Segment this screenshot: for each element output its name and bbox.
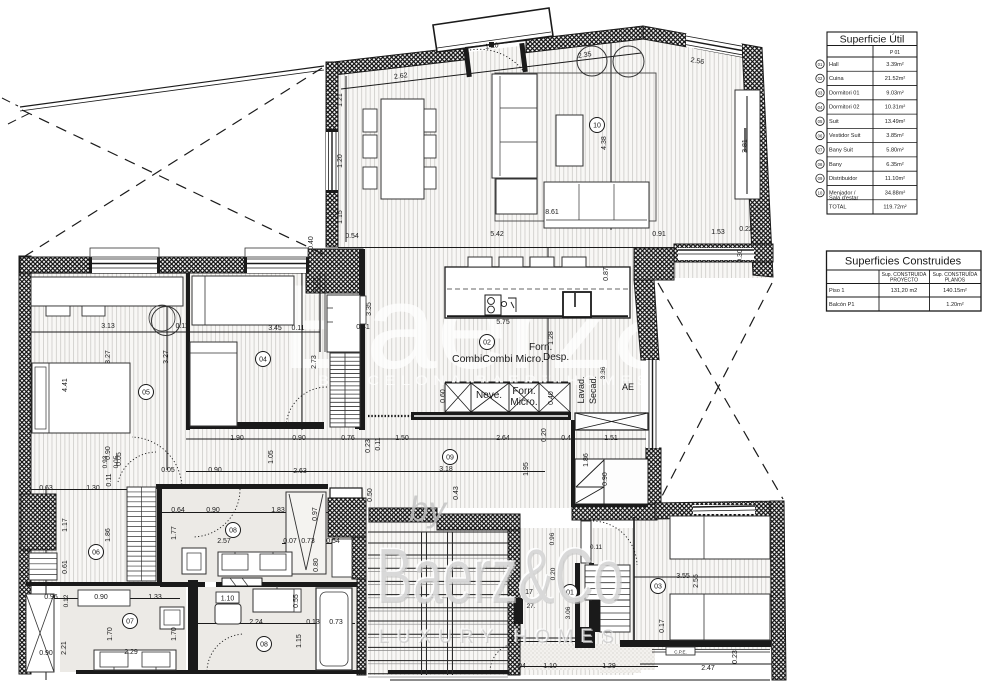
svg-text:0.40: 0.40 bbox=[548, 391, 555, 405]
svg-text:3.45: 3.45 bbox=[268, 325, 282, 332]
svg-text:Baerz&Co: Baerz&Co bbox=[377, 532, 624, 620]
svg-text:0.93: 0.93 bbox=[102, 455, 109, 468]
svg-text:Hall: Hall bbox=[829, 62, 839, 68]
svg-text:02: 02 bbox=[483, 340, 491, 347]
svg-text:2.64: 2.64 bbox=[496, 435, 510, 442]
svg-text:0.17: 0.17 bbox=[659, 619, 666, 633]
svg-text:Dormitori 01: Dormitori 01 bbox=[829, 90, 859, 96]
svg-text:0.40: 0.40 bbox=[308, 236, 315, 250]
svg-text:0.33: 0.33 bbox=[313, 277, 320, 291]
svg-text:3.39m²: 3.39m² bbox=[886, 62, 904, 68]
svg-text:3.35: 3.35 bbox=[366, 302, 373, 316]
svg-text:1.15: 1.15 bbox=[337, 210, 344, 224]
svg-text:0.41: 0.41 bbox=[561, 435, 575, 442]
svg-text:AE: AE bbox=[622, 382, 634, 392]
svg-text:Secad.: Secad. bbox=[588, 376, 598, 404]
svg-text:5.80m²: 5.80m² bbox=[886, 147, 904, 153]
svg-text:0.73: 0.73 bbox=[301, 538, 315, 545]
svg-text:0.30: 0.30 bbox=[737, 249, 744, 263]
svg-text:04: 04 bbox=[818, 105, 823, 110]
svg-text:C.P.E.: C.P.E. bbox=[674, 650, 686, 655]
svg-text:0.54: 0.54 bbox=[345, 233, 359, 240]
svg-text:Vestidor Suit: Vestidor Suit bbox=[829, 133, 861, 139]
svg-text:06: 06 bbox=[818, 133, 823, 138]
svg-text:0.43: 0.43 bbox=[453, 486, 460, 500]
svg-text:3.85m²: 3.85m² bbox=[886, 133, 904, 139]
svg-text:0.23: 0.23 bbox=[732, 650, 739, 664]
svg-text:1.10: 1.10 bbox=[543, 663, 557, 670]
svg-text:2.24: 2.24 bbox=[249, 619, 263, 626]
svg-text:0.61: 0.61 bbox=[62, 560, 69, 574]
svg-text:6.35m²: 6.35m² bbox=[886, 162, 904, 168]
svg-text:0.50: 0.50 bbox=[367, 488, 374, 502]
svg-text:1.30: 1.30 bbox=[86, 485, 100, 492]
svg-text:LUXURY HOMES: LUXURY HOMES bbox=[379, 627, 622, 648]
svg-text:0.11: 0.11 bbox=[291, 325, 304, 332]
svg-text:1.10: 1.10 bbox=[221, 596, 235, 603]
svg-text:04: 04 bbox=[518, 663, 526, 670]
svg-text:1.33: 1.33 bbox=[148, 594, 162, 601]
svg-text:Piso 1: Piso 1 bbox=[829, 288, 845, 294]
svg-text:07: 07 bbox=[126, 619, 134, 626]
svg-text:2.57: 2.57 bbox=[217, 538, 231, 545]
svg-text:3.13: 3.13 bbox=[101, 323, 115, 330]
svg-text:1.86: 1.86 bbox=[105, 528, 112, 542]
svg-text:1.50: 1.50 bbox=[395, 435, 409, 442]
svg-text:0.20: 0.20 bbox=[541, 428, 548, 442]
svg-text:4.38: 4.38 bbox=[601, 136, 608, 150]
svg-text:34.88m²: 34.88m² bbox=[885, 190, 906, 196]
svg-text:1.15: 1.15 bbox=[296, 634, 303, 648]
svg-text:10: 10 bbox=[818, 190, 823, 195]
svg-text:P 01: P 01 bbox=[890, 50, 900, 56]
svg-text:Distribuidor: Distribuidor bbox=[829, 176, 857, 182]
svg-text:Suit: Suit bbox=[829, 119, 839, 125]
svg-text:02: 02 bbox=[818, 76, 823, 81]
svg-text:3.81: 3.81 bbox=[742, 139, 749, 153]
svg-text:0.12: 0.12 bbox=[63, 594, 70, 607]
svg-text:0.05: 0.05 bbox=[161, 467, 175, 474]
svg-text:2.73: 2.73 bbox=[311, 355, 318, 369]
svg-text:21.52m²: 21.52m² bbox=[885, 76, 906, 82]
svg-text:0.96: 0.96 bbox=[44, 594, 58, 601]
svg-text:2.47: 2.47 bbox=[701, 665, 715, 672]
svg-text:0.54: 0.54 bbox=[326, 538, 340, 545]
svg-text:Bany Suit: Bany Suit bbox=[829, 147, 853, 153]
svg-text:01: 01 bbox=[818, 62, 823, 67]
svg-text:PLANOS: PLANOS bbox=[945, 278, 966, 284]
svg-text:1.05: 1.05 bbox=[268, 450, 275, 464]
svg-text:0.60: 0.60 bbox=[440, 389, 447, 403]
svg-text:1.86: 1.86 bbox=[583, 453, 590, 467]
svg-text:0.90: 0.90 bbox=[292, 435, 306, 442]
svg-text:0.80: 0.80 bbox=[313, 558, 320, 572]
svg-text:0.64: 0.64 bbox=[171, 507, 185, 514]
svg-text:1.83: 1.83 bbox=[271, 507, 285, 514]
svg-text:3.36: 3.36 bbox=[600, 366, 607, 379]
svg-text:3.27: 3.27 bbox=[163, 350, 170, 364]
svg-text:0.11: 0.11 bbox=[175, 323, 188, 330]
svg-text:Bany: Bany bbox=[829, 162, 842, 168]
svg-text:Micro.: Micro. bbox=[510, 397, 537, 408]
svg-text:0.91: 0.91 bbox=[652, 231, 666, 238]
svg-text:13.49m²: 13.49m² bbox=[885, 119, 906, 125]
svg-text:0.07: 0.07 bbox=[283, 538, 297, 545]
svg-text:1.77: 1.77 bbox=[171, 526, 178, 540]
svg-text:Forn.: Forn. bbox=[512, 386, 535, 397]
svg-text:131,20 m2: 131,20 m2 bbox=[891, 288, 917, 294]
svg-text:9.03m²: 9.03m² bbox=[886, 90, 904, 96]
svg-text:Sala d'estar: Sala d'estar bbox=[829, 195, 859, 201]
svg-text:06: 06 bbox=[92, 550, 100, 557]
svg-text:TOTAL: TOTAL bbox=[829, 205, 847, 211]
svg-text:Desp.: Desp. bbox=[543, 352, 569, 363]
svg-text:0.90: 0.90 bbox=[208, 467, 222, 474]
svg-text:0.90: 0.90 bbox=[94, 594, 108, 601]
svg-text:0.63: 0.63 bbox=[39, 485, 53, 492]
svg-text:140.15m²: 140.15m² bbox=[943, 288, 967, 294]
svg-text:4.41: 4.41 bbox=[62, 378, 69, 392]
svg-text:Superficies Construides: Superficies Construides bbox=[845, 256, 962, 268]
svg-text:0.11: 0.11 bbox=[375, 437, 382, 450]
svg-text:8.61: 8.61 bbox=[545, 209, 559, 216]
svg-text:05: 05 bbox=[818, 119, 823, 124]
svg-text:PROYECTO: PROYECTO bbox=[890, 278, 918, 284]
svg-text:2.29: 2.29 bbox=[124, 649, 138, 656]
svg-text:1.51: 1.51 bbox=[604, 435, 618, 442]
svg-text:2.21: 2.21 bbox=[61, 641, 68, 655]
svg-text:08: 08 bbox=[260, 642, 268, 649]
svg-text:09: 09 bbox=[446, 455, 454, 462]
svg-text:1.70: 1.70 bbox=[171, 627, 178, 641]
svg-text:1.90: 1.90 bbox=[230, 435, 244, 442]
svg-text:0.76: 0.76 bbox=[341, 435, 355, 442]
svg-text:0.23: 0.23 bbox=[365, 439, 372, 453]
svg-text:1.95: 1.95 bbox=[523, 462, 530, 476]
svg-text:Neve.: Neve. bbox=[476, 390, 502, 401]
svg-text:0.22: 0.22 bbox=[739, 226, 753, 233]
svg-text:by: by bbox=[409, 490, 448, 529]
svg-text:0.13: 0.13 bbox=[306, 619, 320, 626]
svg-text:0.41: 0.41 bbox=[356, 324, 370, 331]
svg-text:1.20: 1.20 bbox=[337, 154, 344, 168]
svg-text:08: 08 bbox=[229, 528, 237, 535]
svg-text:2.63: 2.63 bbox=[293, 468, 307, 475]
svg-text:09: 09 bbox=[818, 176, 823, 181]
svg-text:CombiCombi Micro.: CombiCombi Micro. bbox=[452, 354, 544, 365]
svg-text:Dormitori 02: Dormitori 02 bbox=[829, 105, 859, 111]
svg-text:05: 05 bbox=[142, 390, 150, 397]
svg-text:0.90: 0.90 bbox=[602, 472, 609, 486]
svg-text:08: 08 bbox=[818, 162, 823, 167]
svg-text:0.73: 0.73 bbox=[329, 619, 343, 626]
svg-text:0.90: 0.90 bbox=[206, 507, 220, 514]
svg-text:10.31m²: 10.31m² bbox=[885, 105, 906, 111]
svg-text:10: 10 bbox=[593, 123, 601, 130]
svg-text:3.55: 3.55 bbox=[676, 573, 690, 580]
svg-text:0.55: 0.55 bbox=[293, 594, 300, 608]
svg-text:1.21: 1.21 bbox=[337, 93, 344, 107]
svg-text:03: 03 bbox=[654, 584, 662, 591]
svg-text:3.18: 3.18 bbox=[439, 466, 453, 473]
svg-text:1.17: 1.17 bbox=[62, 518, 69, 532]
svg-text:Balcón P1: Balcón P1 bbox=[829, 302, 855, 308]
svg-text:5.42: 5.42 bbox=[490, 231, 504, 238]
svg-text:2.55: 2.55 bbox=[693, 574, 700, 588]
svg-text:1.29: 1.29 bbox=[602, 663, 616, 670]
svg-text:07: 07 bbox=[818, 148, 823, 153]
svg-text:1.70: 1.70 bbox=[107, 627, 114, 641]
svg-text:1.20m²: 1.20m² bbox=[946, 302, 964, 308]
svg-text:Superficie Útil: Superficie Útil bbox=[840, 33, 905, 46]
svg-text:3.27: 3.27 bbox=[105, 350, 112, 364]
svg-text:04: 04 bbox=[259, 357, 267, 364]
svg-text:1.53: 1.53 bbox=[711, 229, 725, 236]
svg-text:0.87: 0.87 bbox=[603, 267, 610, 281]
svg-text:0.05: 0.05 bbox=[113, 455, 120, 468]
svg-text:0.97: 0.97 bbox=[312, 507, 319, 521]
svg-text:5.75: 5.75 bbox=[496, 319, 510, 326]
svg-text:0.11: 0.11 bbox=[106, 473, 113, 486]
svg-text:03: 03 bbox=[818, 90, 823, 95]
svg-text:11.10m²: 11.10m² bbox=[885, 176, 905, 182]
svg-text:0.90: 0.90 bbox=[39, 650, 53, 657]
svg-text:Lavad.: Lavad. bbox=[576, 376, 586, 403]
svg-text:Cuina: Cuina bbox=[829, 76, 845, 82]
svg-text:119.72m²: 119.72m² bbox=[883, 205, 906, 211]
